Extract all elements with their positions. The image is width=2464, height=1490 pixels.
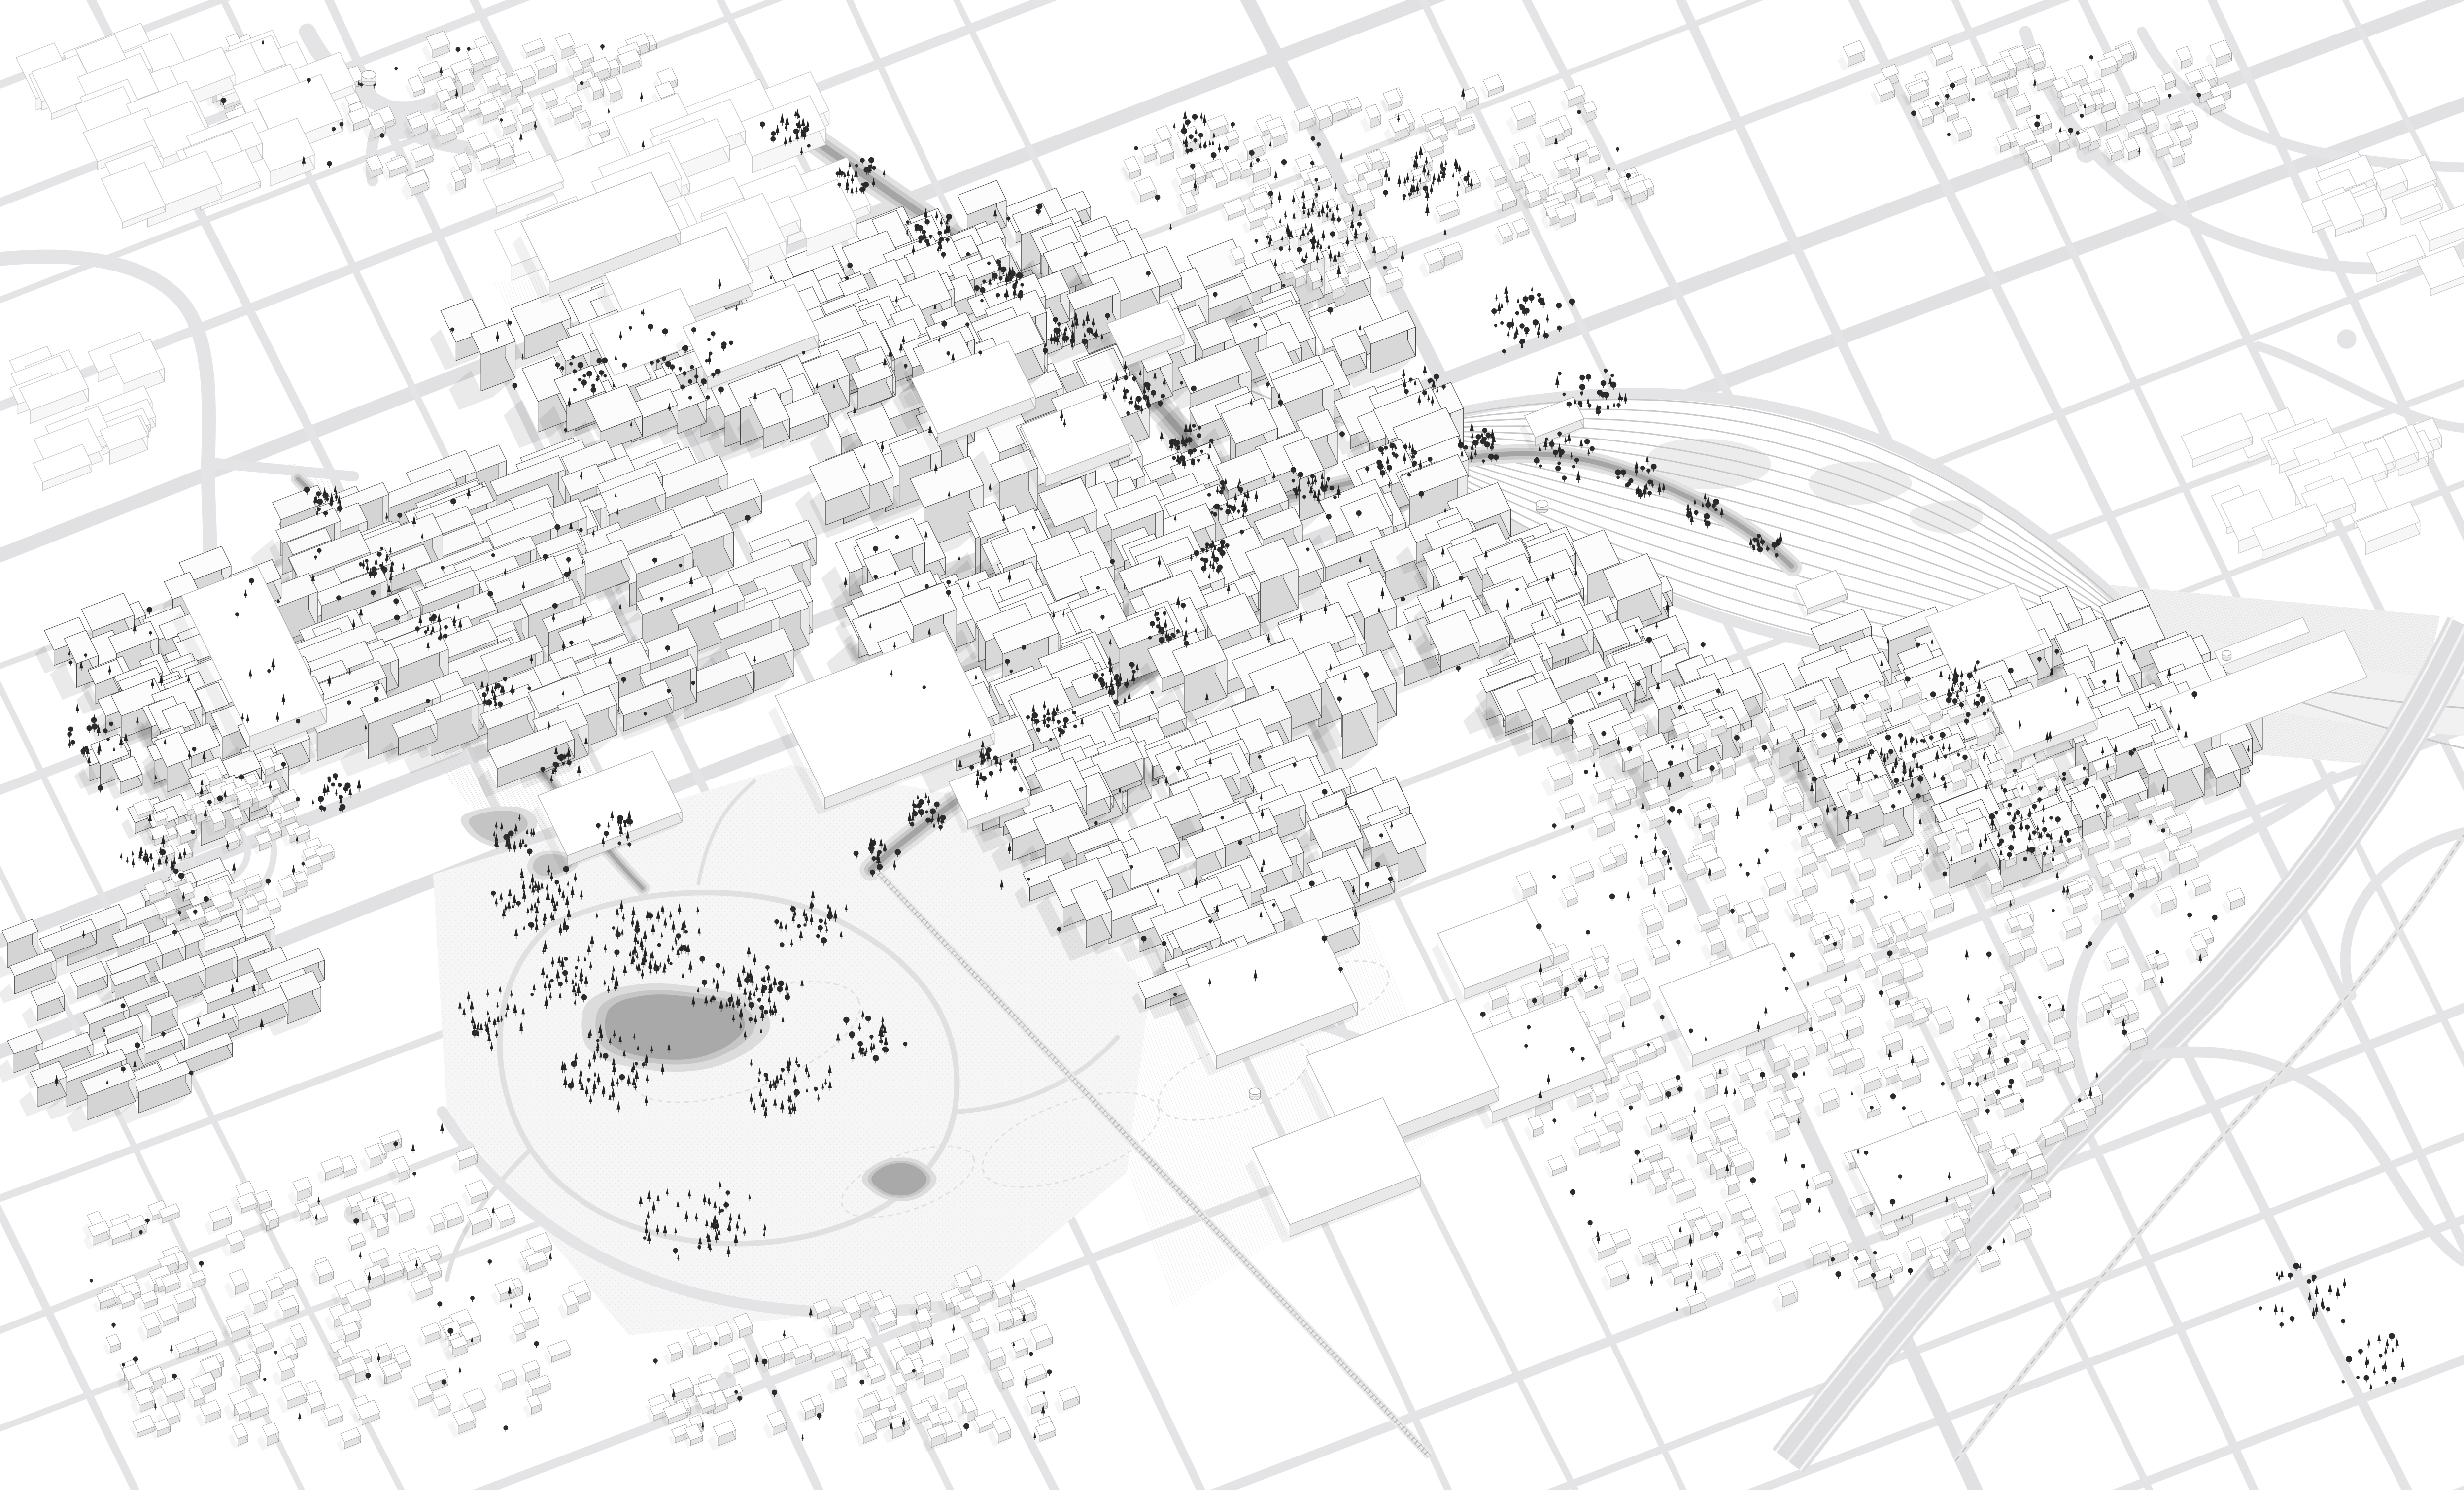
city-axonometric-map [0, 0, 2464, 1490]
water-tank [1249, 1088, 1261, 1100]
water-tank [2222, 650, 2231, 660]
map-canvas [0, 0, 2464, 1490]
water-tank [1536, 500, 1548, 513]
water-tank [362, 70, 376, 85]
